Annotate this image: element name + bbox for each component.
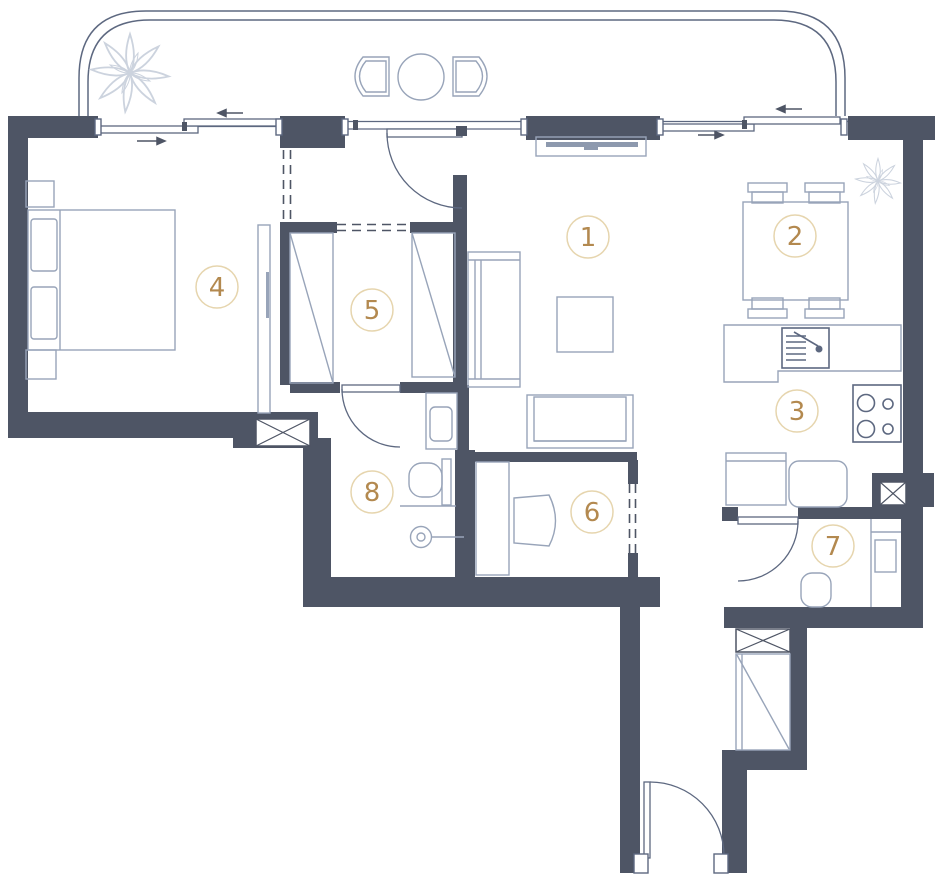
toilet-icon bbox=[409, 459, 451, 505]
room-label-toilet: 7 bbox=[812, 525, 854, 567]
washbasin-icon bbox=[875, 540, 896, 572]
wall bbox=[8, 412, 252, 438]
room-label-dining-area: 2 bbox=[774, 215, 816, 257]
wall bbox=[457, 385, 469, 455]
room-label-study: 6 bbox=[571, 491, 613, 533]
hall-wardrobe bbox=[736, 654, 790, 750]
wall bbox=[410, 222, 460, 233]
floor-plan: 1 2 3 4 5 6 7 8 bbox=[0, 0, 942, 883]
wall bbox=[722, 507, 738, 521]
room-number: 7 bbox=[825, 532, 842, 562]
sliding-wardrobe-door bbox=[258, 225, 270, 413]
balcony-railing-outer bbox=[79, 11, 845, 116]
room-label-bathroom: 8 bbox=[351, 471, 393, 513]
wall bbox=[724, 607, 920, 628]
desk-chair bbox=[514, 495, 556, 546]
desk bbox=[476, 462, 509, 575]
room-number: 3 bbox=[789, 397, 806, 427]
wall bbox=[848, 116, 935, 140]
wall bbox=[466, 452, 637, 462]
shelf-cabinet bbox=[468, 252, 520, 387]
nightstand bbox=[26, 350, 56, 379]
room-number: 2 bbox=[787, 222, 804, 252]
toilet-room-fixtures bbox=[801, 519, 901, 607]
jamb-cap bbox=[342, 119, 348, 135]
room-label-wardrobe: 5 bbox=[351, 289, 393, 331]
balcony-door-leaf bbox=[387, 129, 462, 137]
room-number: 4 bbox=[209, 273, 226, 303]
wall bbox=[8, 116, 28, 418]
bathroom-fixtures bbox=[400, 393, 464, 548]
closet-diagonal bbox=[412, 233, 455, 377]
balcony-door-swing bbox=[387, 133, 462, 208]
mullion-tick bbox=[182, 122, 187, 131]
mullion-tick bbox=[742, 120, 747, 129]
wall bbox=[400, 382, 460, 393]
balcony-chair-right bbox=[453, 57, 487, 96]
tv-icon bbox=[546, 142, 638, 147]
balcony bbox=[79, 11, 901, 204]
plant-icon bbox=[91, 34, 169, 112]
wall bbox=[903, 138, 923, 473]
sliding-panel bbox=[744, 117, 840, 124]
closet-diagonal bbox=[290, 233, 333, 383]
study-furniture bbox=[476, 462, 556, 575]
toilet-icon bbox=[801, 573, 831, 607]
bathroom-door bbox=[342, 385, 400, 447]
wall bbox=[628, 460, 638, 484]
wall bbox=[280, 222, 290, 385]
sliding-panel bbox=[662, 124, 754, 131]
dining-chair bbox=[805, 298, 844, 318]
room-number: 6 bbox=[584, 498, 601, 528]
shaft-icon bbox=[736, 629, 790, 652]
jamb-cap bbox=[521, 119, 527, 135]
dining-chair bbox=[805, 183, 844, 203]
door-hinge bbox=[456, 126, 467, 136]
wall bbox=[790, 628, 807, 770]
shaft-icon bbox=[256, 419, 310, 446]
living-room-furniture bbox=[468, 137, 646, 448]
room-label-living-room: 1 bbox=[567, 216, 609, 258]
wall bbox=[303, 438, 331, 577]
slide-arrow-left-icon bbox=[777, 106, 802, 113]
fridge bbox=[726, 453, 786, 505]
wall bbox=[303, 577, 660, 607]
kitchen-counter bbox=[724, 325, 901, 382]
tv-base bbox=[584, 147, 598, 150]
balcony-chair-left bbox=[355, 57, 389, 96]
balcony-railing-inner bbox=[88, 20, 836, 116]
sliding-panel bbox=[184, 119, 280, 126]
wall bbox=[280, 222, 337, 233]
room-label-bedroom: 4 bbox=[196, 266, 238, 308]
stove-icon bbox=[853, 385, 901, 442]
sofa bbox=[527, 395, 633, 448]
coffee-table bbox=[557, 297, 613, 352]
wall bbox=[798, 507, 904, 519]
room-label-kitchen: 3 bbox=[776, 390, 818, 432]
shaft-icon bbox=[880, 482, 906, 505]
jamb-cap bbox=[634, 854, 648, 873]
bedroom-furniture bbox=[26, 181, 175, 379]
kitchen-sink-icon bbox=[782, 328, 829, 368]
toilet-door bbox=[738, 517, 798, 581]
jamb-cap bbox=[95, 119, 101, 135]
room-number: 1 bbox=[580, 223, 597, 253]
plant-icon bbox=[855, 159, 900, 204]
slide-arrow-right-icon bbox=[698, 132, 723, 139]
mullion-tick bbox=[353, 120, 358, 130]
wall bbox=[620, 577, 640, 873]
balcony-table bbox=[398, 54, 444, 100]
room-number: 5 bbox=[364, 296, 381, 326]
jamb-cap bbox=[714, 854, 728, 873]
jamb-cap bbox=[841, 119, 847, 135]
jamb-cap bbox=[657, 119, 663, 135]
nightstand bbox=[26, 181, 54, 207]
jamb-cap bbox=[276, 119, 282, 135]
door-handle bbox=[266, 272, 269, 318]
dining-chair bbox=[748, 183, 787, 203]
windows bbox=[95, 117, 848, 208]
wall bbox=[628, 553, 638, 577]
entry-door bbox=[634, 782, 728, 873]
wall bbox=[280, 116, 345, 148]
room-number: 8 bbox=[364, 478, 381, 508]
dining-chair bbox=[748, 298, 787, 318]
wall bbox=[455, 450, 475, 577]
bed bbox=[28, 210, 175, 350]
slide-arrow-left-icon bbox=[218, 110, 243, 117]
slide-arrow-right-icon bbox=[137, 138, 165, 145]
washing-machine-icon bbox=[426, 393, 457, 449]
floor-plan-canvas: 1 2 3 4 5 6 7 8 bbox=[0, 0, 942, 883]
kitchen-armchair bbox=[789, 461, 847, 507]
